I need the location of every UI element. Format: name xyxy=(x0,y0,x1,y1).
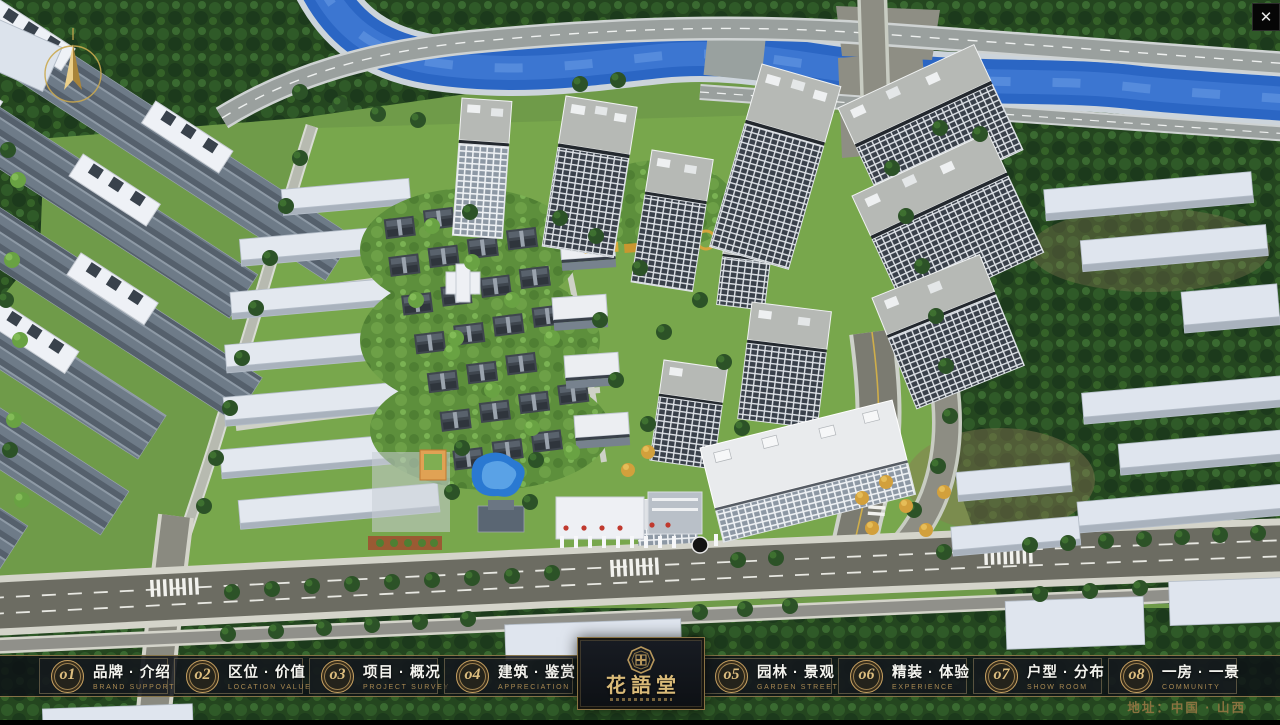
logo-panel[interactable]: 花語堂 xyxy=(577,637,705,710)
nav-number-badge: o3 xyxy=(321,660,354,693)
nav-item-title: 品牌 · 介绍 xyxy=(93,661,167,682)
compass-icon xyxy=(36,28,110,112)
nav-item-architecture[interactable]: o4 建筑 · 鉴赏 APPRECIATION xyxy=(444,658,573,694)
nav-item-brand-intro[interactable]: o1 品牌 · 介绍 BRAND SUPPORT xyxy=(39,658,168,694)
nav-item-subtitle: COMMUNITY xyxy=(1162,684,1236,691)
nav-item-title: 一房 · 一景 xyxy=(1162,661,1236,682)
close-icon: ✕ xyxy=(1260,8,1273,26)
nav-number-badge: o4 xyxy=(456,660,489,693)
seal-icon xyxy=(627,646,655,674)
nav-group-left: o1 品牌 · 介绍 BRAND SUPPORT o2 区位 · 价值 LOCA… xyxy=(0,656,573,696)
nav-item-title: 户型 · 分布 xyxy=(1027,661,1101,682)
nav-number-badge: o6 xyxy=(850,660,883,693)
nav-item-room-view[interactable]: o8 一房 · 一景 COMMUNITY xyxy=(1108,658,1237,694)
nav-item-subtitle: PROJECT SURVEY xyxy=(363,684,437,691)
nav-item-landscape[interactable]: o5 园林 · 景观 GARDEN STREET xyxy=(703,658,832,694)
masterplan-3d-view[interactable] xyxy=(0,0,1280,720)
nav-number-badge: o2 xyxy=(186,660,219,693)
nav-number-badge: o1 xyxy=(51,660,84,693)
nav-number-badge: o8 xyxy=(1120,660,1153,693)
nav-item-subtitle: EXPERIENCE xyxy=(892,684,966,691)
logo-tagline-rule xyxy=(610,698,672,701)
nav-item-title: 建筑 · 鉴赏 xyxy=(498,661,572,682)
nav-item-title: 项目 · 概况 xyxy=(363,661,437,682)
nav-number-badge: o7 xyxy=(985,660,1018,693)
nav-item-project-overview[interactable]: o3 项目 · 概况 PROJECT SURVEY xyxy=(309,658,438,694)
nav-item-subtitle: APPRECIATION xyxy=(498,684,572,691)
nav-item-title: 区位 · 价值 xyxy=(228,661,302,682)
nav-item-subtitle: SHOW ROOM xyxy=(1027,684,1101,691)
nav-item-subtitle: BRAND SUPPORT xyxy=(93,684,167,691)
nav-item-title: 园林 · 景观 xyxy=(757,661,831,682)
nav-item-title: 精装 · 体验 xyxy=(892,661,966,682)
nav-number-badge: o5 xyxy=(715,660,748,693)
nav-group-right: o5 园林 · 景观 GARDEN STREET o6 精装 · 体验 EXPE… xyxy=(703,656,1280,696)
nav-item-floorplan-distribution[interactable]: o7 户型 · 分布 SHOW ROOM xyxy=(973,658,1102,694)
nav-item-subtitle: LOCATION VALUE xyxy=(228,684,302,691)
nav-item-interior-experience[interactable]: o6 精装 · 体验 EXPERIENCE xyxy=(838,658,967,694)
project-logo-name: 花語堂 xyxy=(601,676,681,696)
nav-item-location-value[interactable]: o2 区位 · 价值 LOCATION VALUE xyxy=(174,658,303,694)
nav-item-subtitle: GARDEN STREET xyxy=(757,684,831,691)
close-button[interactable]: ✕ xyxy=(1252,3,1280,31)
project-address: 地址：中国 · 山西 xyxy=(1127,697,1246,716)
